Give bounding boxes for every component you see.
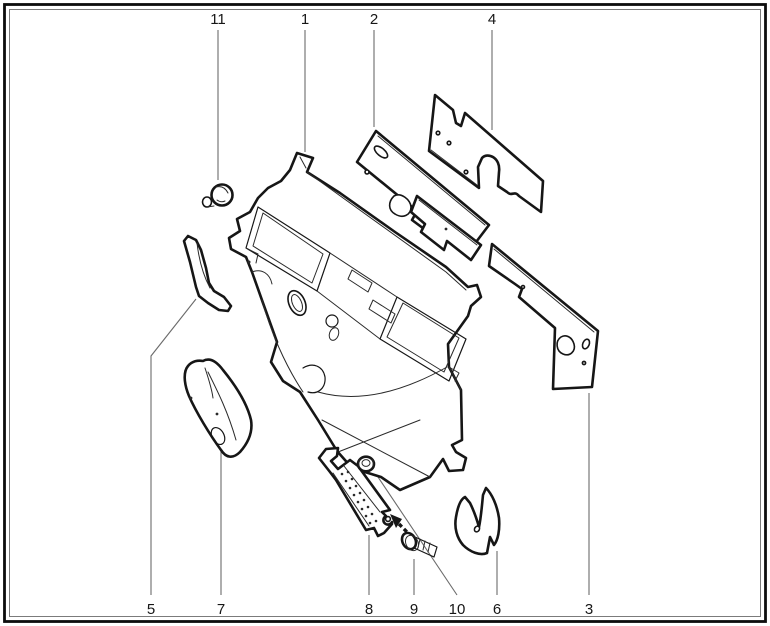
figure-exploded-diagram: 11 1 2 4 5 7 8 9 10 6 3: [0, 0, 770, 626]
callout-label-6: 6: [493, 601, 501, 618]
diagram-canvas: 11 1 2 4 5 7 8 9 10 6 3: [0, 0, 770, 626]
part-nut-10: [358, 457, 374, 472]
callout-label-11: 11: [210, 11, 226, 28]
callout-label-9: 9: [410, 601, 418, 618]
callout-label-4: 4: [488, 11, 496, 28]
callout-label-7: 7: [217, 601, 225, 618]
callout-label-5: 5: [147, 601, 155, 618]
callout-label-8: 8: [365, 601, 373, 618]
callout-label-1: 1: [301, 11, 309, 28]
callout-label-3: 3: [585, 601, 593, 618]
callout-label-10: 10: [449, 601, 466, 618]
callout-label-2: 2: [370, 11, 378, 28]
